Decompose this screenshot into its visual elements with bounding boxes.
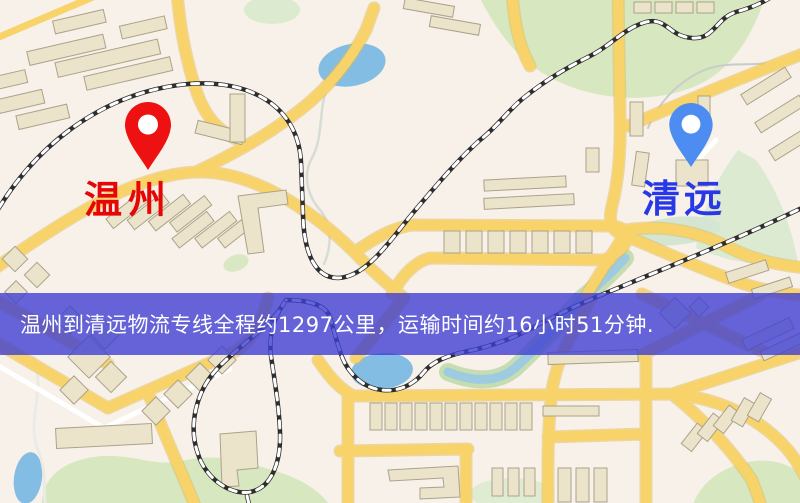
origin-pin-icon bbox=[124, 100, 172, 172]
destination-label: 清远 bbox=[642, 180, 726, 218]
map-screenshot: 温州 清远 温州到清远物流专线全程约1297公里，运输时间约16小时51分钟. bbox=[0, 0, 800, 503]
destination-pin-shape bbox=[669, 103, 712, 167]
street-map-canvas bbox=[0, 0, 800, 503]
route-info-banner: 温州到清远物流专线全程约1297公里，运输时间约16小时51分钟. bbox=[0, 293, 800, 355]
route-info-text: 温州到清远物流专线全程约1297公里，运输时间约16小时51分钟. bbox=[0, 309, 654, 339]
origin-pin-shape bbox=[125, 102, 171, 170]
origin-label: 温州 bbox=[84, 181, 172, 219]
destination-pin-icon bbox=[666, 102, 716, 168]
